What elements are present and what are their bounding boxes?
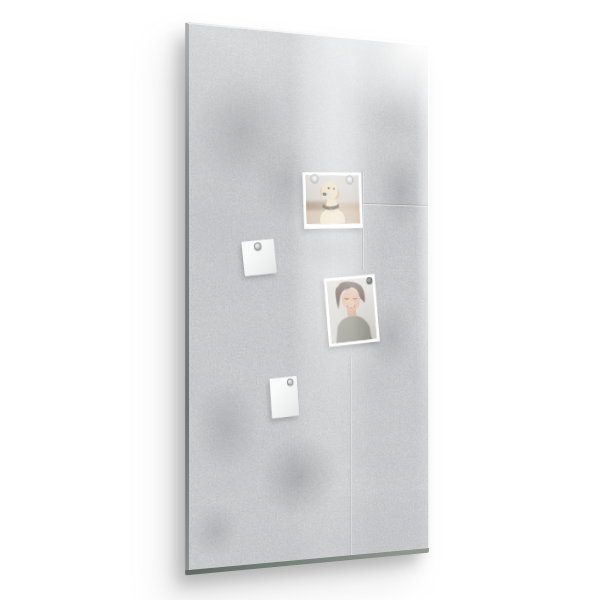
concrete-stains bbox=[189, 24, 429, 570]
magnet-icon bbox=[254, 242, 262, 250]
magnet-icon bbox=[310, 174, 318, 183]
note-lower bbox=[269, 376, 299, 418]
concrete-seam bbox=[350, 357, 351, 556]
note-upper bbox=[241, 239, 276, 276]
dog-photo bbox=[302, 172, 362, 229]
magnet-icon bbox=[346, 175, 354, 184]
board-face bbox=[189, 24, 429, 570]
glass-board bbox=[189, 24, 429, 570]
magnet-icon bbox=[287, 378, 294, 385]
person-photo-image bbox=[327, 277, 378, 344]
person-photo bbox=[324, 274, 380, 347]
glass-edge-right bbox=[428, 46, 430, 548]
glass-edge-left bbox=[185, 23, 189, 573]
product-photo-stage bbox=[0, 0, 600, 600]
